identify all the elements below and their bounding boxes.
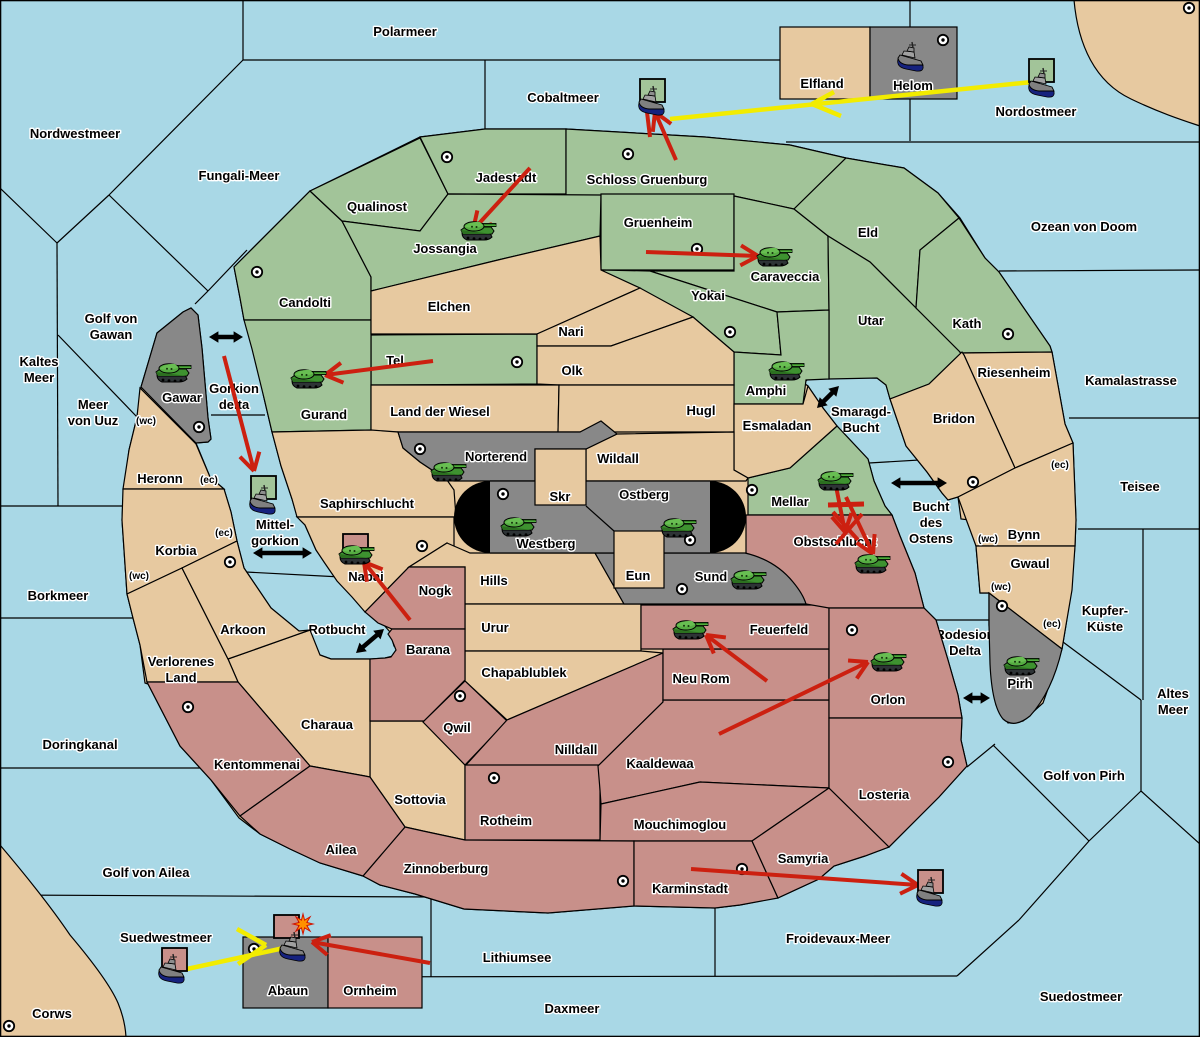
- svg-text:Jossangia: Jossangia: [413, 241, 477, 256]
- svg-text:Suedostmeer: Suedostmeer: [1040, 989, 1122, 1004]
- svg-text:Meer: Meer: [24, 370, 54, 385]
- svg-text:Land: Land: [165, 670, 196, 685]
- svg-text:Bridon: Bridon: [933, 411, 975, 426]
- svg-text:Nogk: Nogk: [419, 583, 452, 598]
- svg-text:Rodesion: Rodesion: [935, 627, 994, 642]
- svg-text:(wc): (wc): [978, 534, 998, 545]
- svg-text:Bucht: Bucht: [843, 420, 881, 435]
- svg-text:Korbia: Korbia: [155, 543, 197, 558]
- svg-text:Barana: Barana: [406, 642, 451, 657]
- svg-text:Urur: Urur: [481, 620, 508, 635]
- svg-text:Eun: Eun: [626, 568, 651, 583]
- svg-text:Esmaladan: Esmaladan: [743, 418, 812, 433]
- svg-text:Eld: Eld: [858, 225, 878, 240]
- svg-text:Polarmeer: Polarmeer: [373, 24, 437, 39]
- svg-text:Bynn: Bynn: [1008, 527, 1041, 542]
- svg-text:Kaaldewaa: Kaaldewaa: [626, 756, 694, 771]
- svg-text:(ec): (ec): [200, 475, 218, 486]
- svg-text:Sund: Sund: [695, 569, 728, 584]
- svg-text:Borkmeer: Borkmeer: [28, 588, 89, 603]
- svg-text:Gawar: Gawar: [162, 390, 202, 405]
- svg-text:Ozean von Doom: Ozean von Doom: [1031, 219, 1137, 234]
- svg-text:Gwaul: Gwaul: [1010, 556, 1049, 571]
- svg-text:Saphirschlucht: Saphirschlucht: [320, 496, 415, 511]
- svg-text:(ec): (ec): [215, 528, 233, 539]
- svg-text:Teisee: Teisee: [1120, 479, 1160, 494]
- svg-text:Gruenheim: Gruenheim: [624, 215, 693, 230]
- svg-text:Froidevaux-Meer: Froidevaux-Meer: [786, 931, 890, 946]
- svg-text:Küste: Küste: [1087, 619, 1123, 634]
- svg-text:Ostberg: Ostberg: [619, 487, 669, 502]
- svg-text:Golf von Pirh: Golf von Pirh: [1043, 768, 1125, 783]
- svg-text:Olk: Olk: [562, 363, 584, 378]
- svg-text:Utar: Utar: [858, 313, 884, 328]
- svg-text:(wc): (wc): [991, 582, 1011, 593]
- svg-text:Losteria: Losteria: [859, 787, 910, 802]
- svg-text:Golf von: Golf von: [85, 311, 138, 326]
- svg-text:Nilldall: Nilldall: [555, 742, 598, 757]
- svg-text:Westberg: Westberg: [517, 536, 576, 551]
- svg-text:Meer: Meer: [1158, 702, 1188, 717]
- svg-text:Gawan: Gawan: [90, 327, 133, 342]
- svg-text:Daxmeer: Daxmeer: [545, 1001, 600, 1016]
- svg-text:(ec): (ec): [1043, 619, 1061, 630]
- svg-text:Bucht: Bucht: [913, 499, 951, 514]
- svg-text:Suedwestmeer: Suedwestmeer: [120, 930, 212, 945]
- svg-text:Elchen: Elchen: [428, 299, 471, 314]
- svg-text:Heronn: Heronn: [137, 471, 183, 486]
- svg-text:Charaua: Charaua: [301, 717, 354, 732]
- svg-text:Pirh: Pirh: [1007, 676, 1032, 691]
- svg-text:Kentommenai: Kentommenai: [214, 757, 300, 772]
- svg-text:Chapablublek: Chapablublek: [481, 665, 567, 680]
- svg-text:Caraveccia: Caraveccia: [751, 269, 820, 284]
- svg-text:Riesenheim: Riesenheim: [978, 365, 1051, 380]
- svg-text:Mittel-: Mittel-: [256, 517, 294, 532]
- svg-text:Elfland: Elfland: [800, 76, 843, 91]
- svg-text:Norterend: Norterend: [465, 449, 527, 464]
- svg-text:Amphi: Amphi: [746, 383, 786, 398]
- svg-text:Qualinost: Qualinost: [347, 199, 408, 214]
- svg-text:Skr: Skr: [550, 489, 571, 504]
- svg-text:Golf von Ailea: Golf von Ailea: [103, 865, 191, 880]
- svg-text:Ailea: Ailea: [325, 842, 357, 857]
- svg-text:Neu Rom: Neu Rom: [672, 671, 729, 686]
- svg-text:Rotheim: Rotheim: [480, 813, 532, 828]
- svg-text:Delta: Delta: [949, 643, 982, 658]
- svg-text:Ostens: Ostens: [909, 531, 953, 546]
- svg-text:Altes: Altes: [1157, 686, 1189, 701]
- svg-text:Wildall: Wildall: [597, 451, 639, 466]
- svg-text:von Uuz: von Uuz: [68, 413, 119, 428]
- svg-text:Ornheim: Ornheim: [343, 983, 396, 998]
- svg-text:Smaragd-: Smaragd-: [831, 404, 891, 419]
- svg-text:Nari: Nari: [558, 324, 583, 339]
- svg-text:Abaun: Abaun: [268, 983, 309, 998]
- svg-text:Nordwestmeer: Nordwestmeer: [30, 126, 120, 141]
- svg-text:des: des: [920, 515, 942, 530]
- svg-text:Nordostmeer: Nordostmeer: [996, 104, 1077, 119]
- svg-text:Rotbucht: Rotbucht: [308, 622, 366, 637]
- svg-text:Samyria: Samyria: [778, 851, 829, 866]
- svg-text:(wc): (wc): [129, 571, 149, 582]
- svg-text:Cobaltmeer: Cobaltmeer: [527, 90, 599, 105]
- svg-text:Sottovia: Sottovia: [394, 792, 446, 807]
- svg-text:Doringkanal: Doringkanal: [42, 737, 117, 752]
- svg-text:Arkoon: Arkoon: [220, 622, 266, 637]
- svg-text:Schloss Gruenburg: Schloss Gruenburg: [587, 172, 708, 187]
- svg-text:Feuerfeld: Feuerfeld: [750, 622, 809, 637]
- svg-text:Verlorenes: Verlorenes: [148, 654, 215, 669]
- svg-text:Kupfer-: Kupfer-: [1082, 603, 1128, 618]
- svg-text:Hugl: Hugl: [687, 403, 716, 418]
- svg-text:(ec): (ec): [1051, 460, 1069, 471]
- svg-text:Mellar: Mellar: [771, 494, 809, 509]
- svg-text:Hills: Hills: [480, 573, 507, 588]
- svg-text:Yokai: Yokai: [691, 288, 725, 303]
- svg-text:Fungali-Meer: Fungali-Meer: [199, 168, 280, 183]
- svg-text:Meer: Meer: [78, 397, 108, 412]
- svg-text:Zinnoberburg: Zinnoberburg: [404, 861, 489, 876]
- svg-text:Lithiumsee: Lithiumsee: [483, 950, 552, 965]
- svg-text:Kaltes: Kaltes: [19, 354, 58, 369]
- svg-text:Qwil: Qwil: [443, 720, 470, 735]
- svg-text:Land der Wiesel: Land der Wiesel: [390, 404, 490, 419]
- svg-text:Karminstadt: Karminstadt: [652, 881, 729, 896]
- svg-text:Candolti: Candolti: [279, 295, 331, 310]
- svg-text:Kath: Kath: [953, 316, 982, 331]
- svg-text:Kamalastrasse: Kamalastrasse: [1085, 373, 1177, 388]
- svg-text:Gurand: Gurand: [301, 407, 347, 422]
- svg-text:Mouchimoglou: Mouchimoglou: [634, 817, 726, 832]
- svg-text:gorkion: gorkion: [251, 533, 299, 548]
- svg-text:Orlon: Orlon: [871, 692, 906, 707]
- svg-text:(wc): (wc): [136, 416, 156, 427]
- svg-text:Corws: Corws: [32, 1006, 72, 1021]
